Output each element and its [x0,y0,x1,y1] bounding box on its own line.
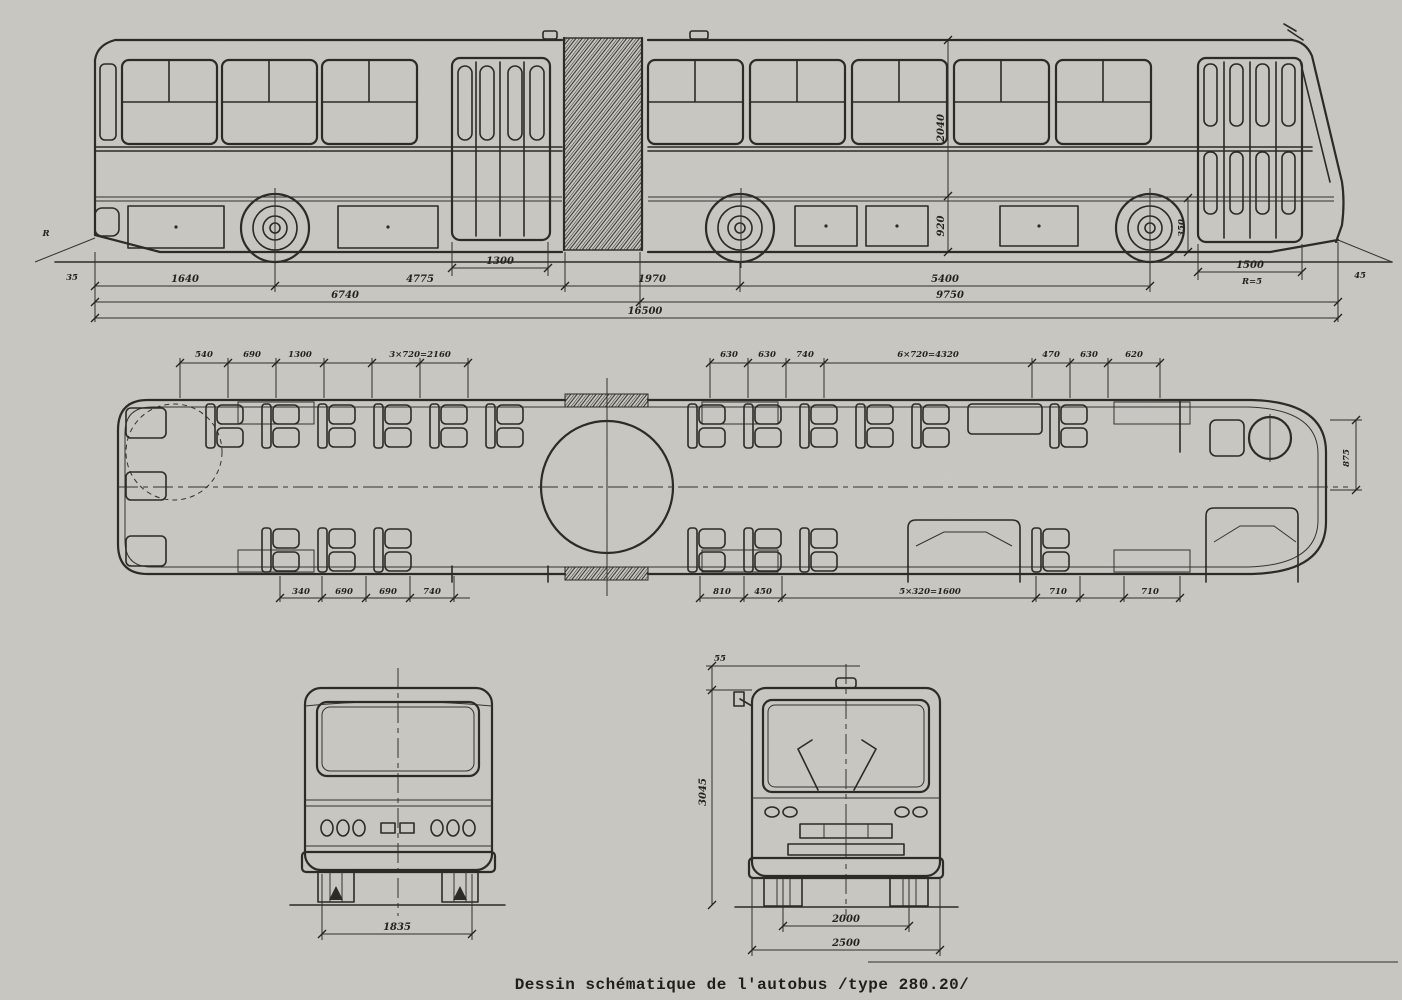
plan-dim: 740 [796,350,814,360]
dim-total-length: 16500 [628,306,663,317]
rear-dim-track: 1835 [383,922,411,933]
paper-noise-texture [0,0,1402,1000]
plan-dim: 340 [292,587,310,597]
plan-dim: 710 [1049,587,1067,597]
dim-bellows-span: 1970 [638,274,666,285]
dim-front-wheelbase: 5400 [931,274,959,285]
plan-dim: 630 [758,350,776,360]
dim-floor-height: 920 [936,216,947,237]
dim-rear-wheelbase: 4775 [406,274,434,285]
plan-dim: 450 [754,587,772,597]
plan-dim-front-width: 875 [1342,449,1352,467]
dim-front-section-length: 9750 [936,290,964,301]
plan-dim: 540 [195,350,213,360]
dim-front-door-note: R=5 [1241,277,1262,287]
caption: Dessin schématique de l'autobus /type 28… [515,976,970,994]
plan-dim: 690 [335,587,353,597]
plan-dim: 620 [1125,350,1143,360]
dim-rear-overhang: 1640 [171,274,199,285]
bus-blueprint-drawing: 1300 1500 R=5 1640 4775 1970 5400 6740 9… [0,0,1402,1000]
plan-dim: 690 [243,350,261,360]
label-approach-angle: R [41,229,49,239]
front-dim-track: 2000 [831,914,860,925]
articulation-bellows [564,38,642,250]
dim-upper-height: 2040 [936,114,947,143]
plan-dim: 5×320=1600 [899,587,961,597]
label-rear-tick: 35 [66,273,78,283]
plan-dim: 630 [1080,350,1098,360]
plan-dim: 690 [379,587,397,597]
plan-dim: 3×720=2160 [389,350,451,360]
label-front-tick: 45 [1354,271,1366,281]
dim-front-door-width: 1500 [1236,260,1264,271]
plan-dim: 710 [1141,587,1159,597]
plan-dim: 470 [1042,350,1060,360]
plan-dim: 1300 [288,350,312,360]
plan-dim: 810 [713,587,731,597]
plan-dim: 6×720=4320 [897,350,959,360]
dim-rear-section-length: 6740 [331,290,359,301]
front-dim-height: 3045 [698,778,709,806]
dim-rear-door-width: 1300 [486,256,514,267]
plan-dim: 630 [720,350,738,360]
scanned-blueprint-page: 1300 1500 R=5 1640 4775 1970 5400 6740 9… [0,0,1402,1000]
front-dim-width: 2500 [831,938,860,949]
front-dim-roof-cap: 55 [714,654,726,664]
dim-front-clearance: 350 [1177,219,1187,237]
plan-dim: 740 [423,587,441,597]
